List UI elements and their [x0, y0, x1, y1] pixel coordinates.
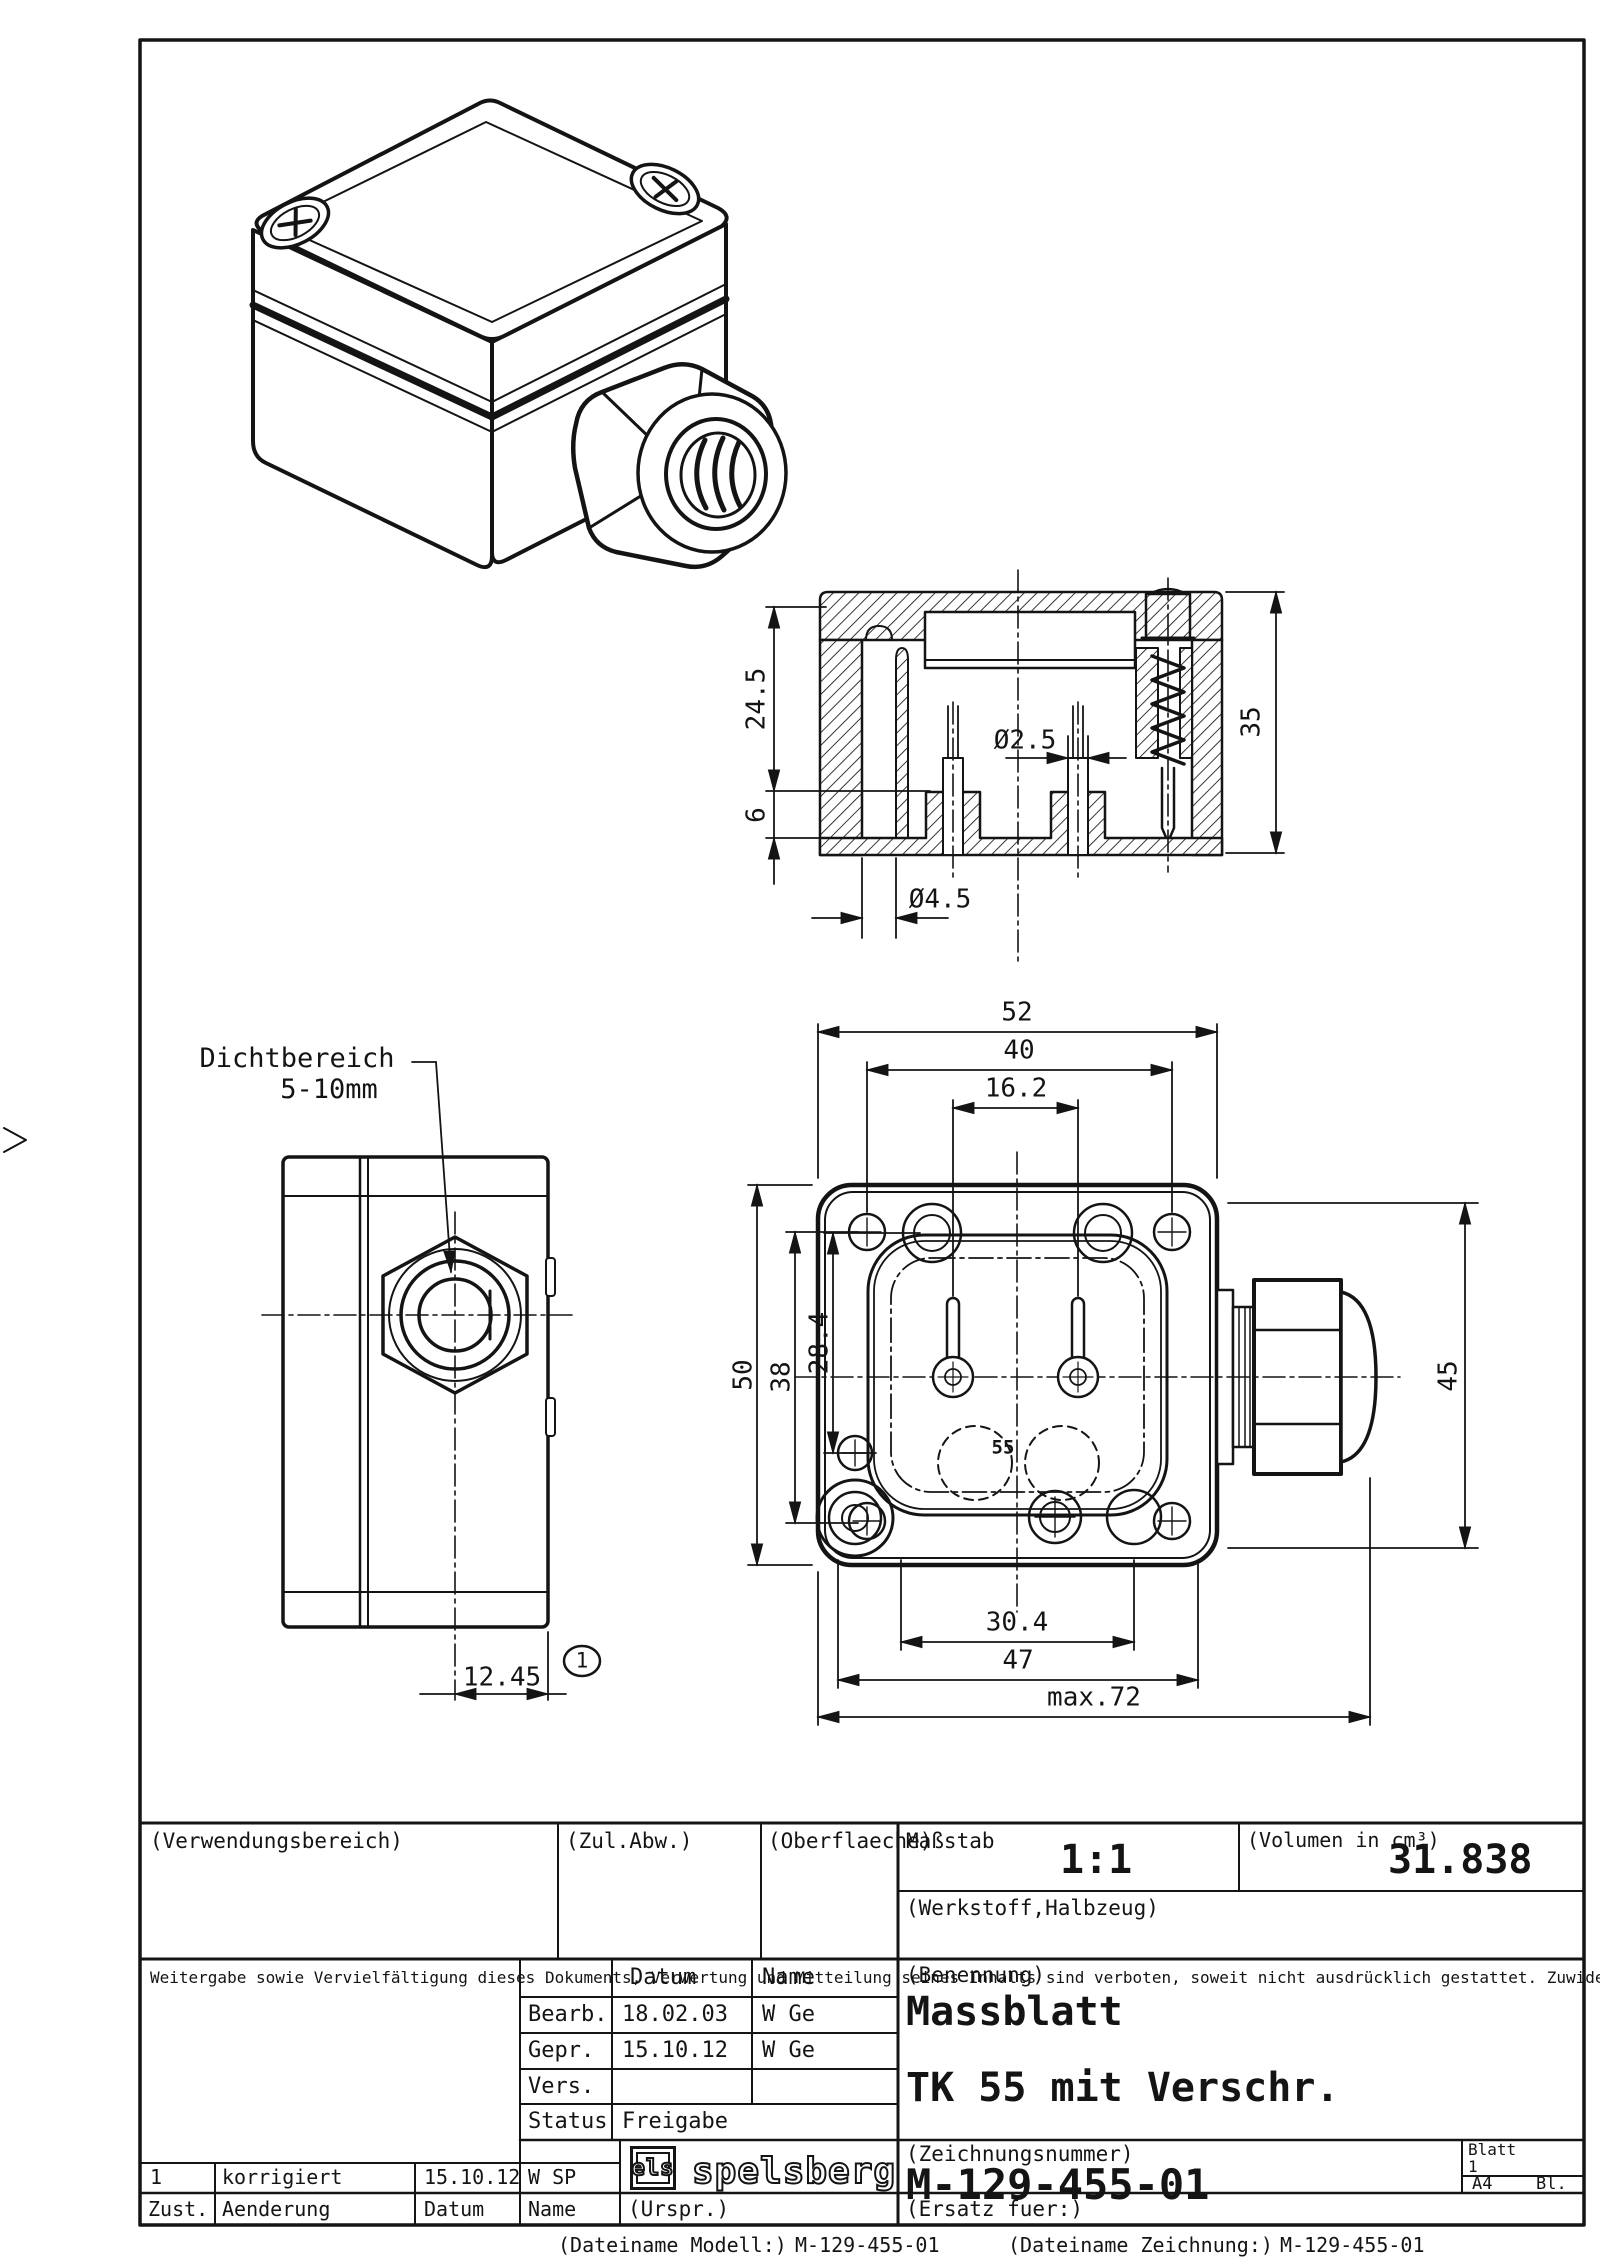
dim-6: 6 — [743, 807, 772, 823]
filename-model-value: M-129-455-01 — [795, 2234, 940, 2256]
revh-aenderung: Aenderung — [222, 2198, 330, 2220]
drawing-canvas — [0, 0, 1600, 2264]
logo-els: els — [636, 2152, 670, 2184]
dim-16-2: 16.2 — [985, 1075, 1048, 1104]
col-name: Name — [762, 1966, 815, 1990]
benennung-line2: TK 55 mit Verschr. — [906, 2066, 1339, 2110]
benennung-line1: Massblatt — [906, 1990, 1123, 2034]
mold-mark-55: 55 — [992, 1438, 1015, 1459]
urspr-label: (Urspr.) — [628, 2198, 729, 2221]
col-datum: Datum — [630, 1966, 696, 1990]
revh-zust: Zust. — [148, 2198, 208, 2220]
bearb-name: W Ge — [762, 2003, 815, 2027]
blatt-value: 1 — [1468, 2158, 1478, 2176]
vers-label: Vers. — [528, 2075, 594, 2099]
status-label: Status — [528, 2110, 607, 2134]
dim-50: 50 — [730, 1359, 759, 1390]
filename-drawing-label: (Dateiname Zeichnung:) — [1008, 2234, 1273, 2256]
dim-12-45: 12.45 — [463, 1664, 541, 1693]
bearb-label: Bearb. — [528, 2003, 607, 2027]
dim-45: 45 — [1435, 1360, 1464, 1391]
iso-view — [253, 101, 786, 568]
status-value: Freigabe — [622, 2110, 728, 2134]
dim-38: 38 — [768, 1361, 797, 1392]
format-value: A4 — [1472, 2175, 1492, 2194]
verwendungsbereich-label: (Verwendungsbereich) — [150, 1830, 403, 1853]
werkstoff-label: (Werkstoff,Halbzeug) — [906, 1897, 1159, 1920]
ersatz-label: (Ersatz fuer:) — [906, 2198, 1083, 2221]
plan-view — [748, 1024, 1478, 1725]
gepr-label: Gepr. — [528, 2039, 594, 2063]
gepr-datum: 15.10.12 — [622, 2039, 728, 2063]
revh-name: Name — [528, 2198, 576, 2220]
dim-max-72: max.72 — [1047, 1684, 1141, 1713]
blatt-label: Blatt — [1468, 2141, 1516, 2159]
filename-drawing-value: M-129-455-01 — [1280, 2234, 1425, 2256]
sheet-frame — [4, 40, 1584, 2225]
section-view — [766, 570, 1284, 962]
rev-zust: 1 — [150, 2166, 162, 2188]
filename-model-label: (Dateiname Modell:) — [558, 2234, 787, 2256]
dim-35: 35 — [1238, 706, 1267, 737]
volumen-value: 31.838 — [1388, 1838, 1533, 1882]
gepr-name: W Ge — [762, 2039, 815, 2063]
dim-24-5: 24.5 — [743, 668, 772, 731]
fold-mark — [4, 1128, 26, 1152]
rev-aenderung: korrigiert — [222, 2166, 342, 2188]
drawing-sheet: 24.5 6 Ø2.5 35 Ø4.5 Dichtbereich 5-10mm … — [0, 0, 1600, 2264]
massstab-value: 1:1 — [1060, 1838, 1132, 1882]
balloon-1-label: 1 — [576, 1649, 589, 1672]
logo-els-box: els — [630, 2146, 676, 2190]
rev-datum: 15.10.12 — [424, 2166, 520, 2188]
side-view — [262, 1062, 600, 1700]
dim-28-4: 28.4 — [806, 1312, 835, 1375]
iso-gland-nut — [573, 364, 786, 567]
benennung-label: (Benennung) — [906, 1964, 1045, 1987]
dim-40: 40 — [1003, 1037, 1034, 1066]
legal-notice: Weitergabe sowie Vervielfältigung dieses… — [150, 1967, 522, 1989]
dim-dia-4-5: Ø4.5 — [909, 886, 972, 915]
logo-spelsberg-wordmark: spelsberg — [692, 2152, 896, 2192]
rev-name: W SP — [528, 2166, 576, 2188]
dim-47: 47 — [1002, 1647, 1033, 1676]
massstab-label: Maßstab — [906, 1830, 995, 1853]
callout-dichtbereich-range: 5-10mm — [280, 1075, 378, 1105]
dim-dia-2-5: Ø2.5 — [994, 727, 1057, 756]
bearb-datum: 18.02.03 — [622, 2003, 728, 2027]
bl-label: Bl. — [1536, 2175, 1567, 2194]
zul-abw-label: (Zul.Abw.) — [566, 1830, 692, 1853]
dim-52: 52 — [1001, 999, 1032, 1028]
dim-30-4: 30.4 — [986, 1609, 1049, 1638]
callout-dichtbereich: Dichtbereich — [199, 1044, 394, 1074]
revh-datum: Datum — [424, 2198, 484, 2220]
